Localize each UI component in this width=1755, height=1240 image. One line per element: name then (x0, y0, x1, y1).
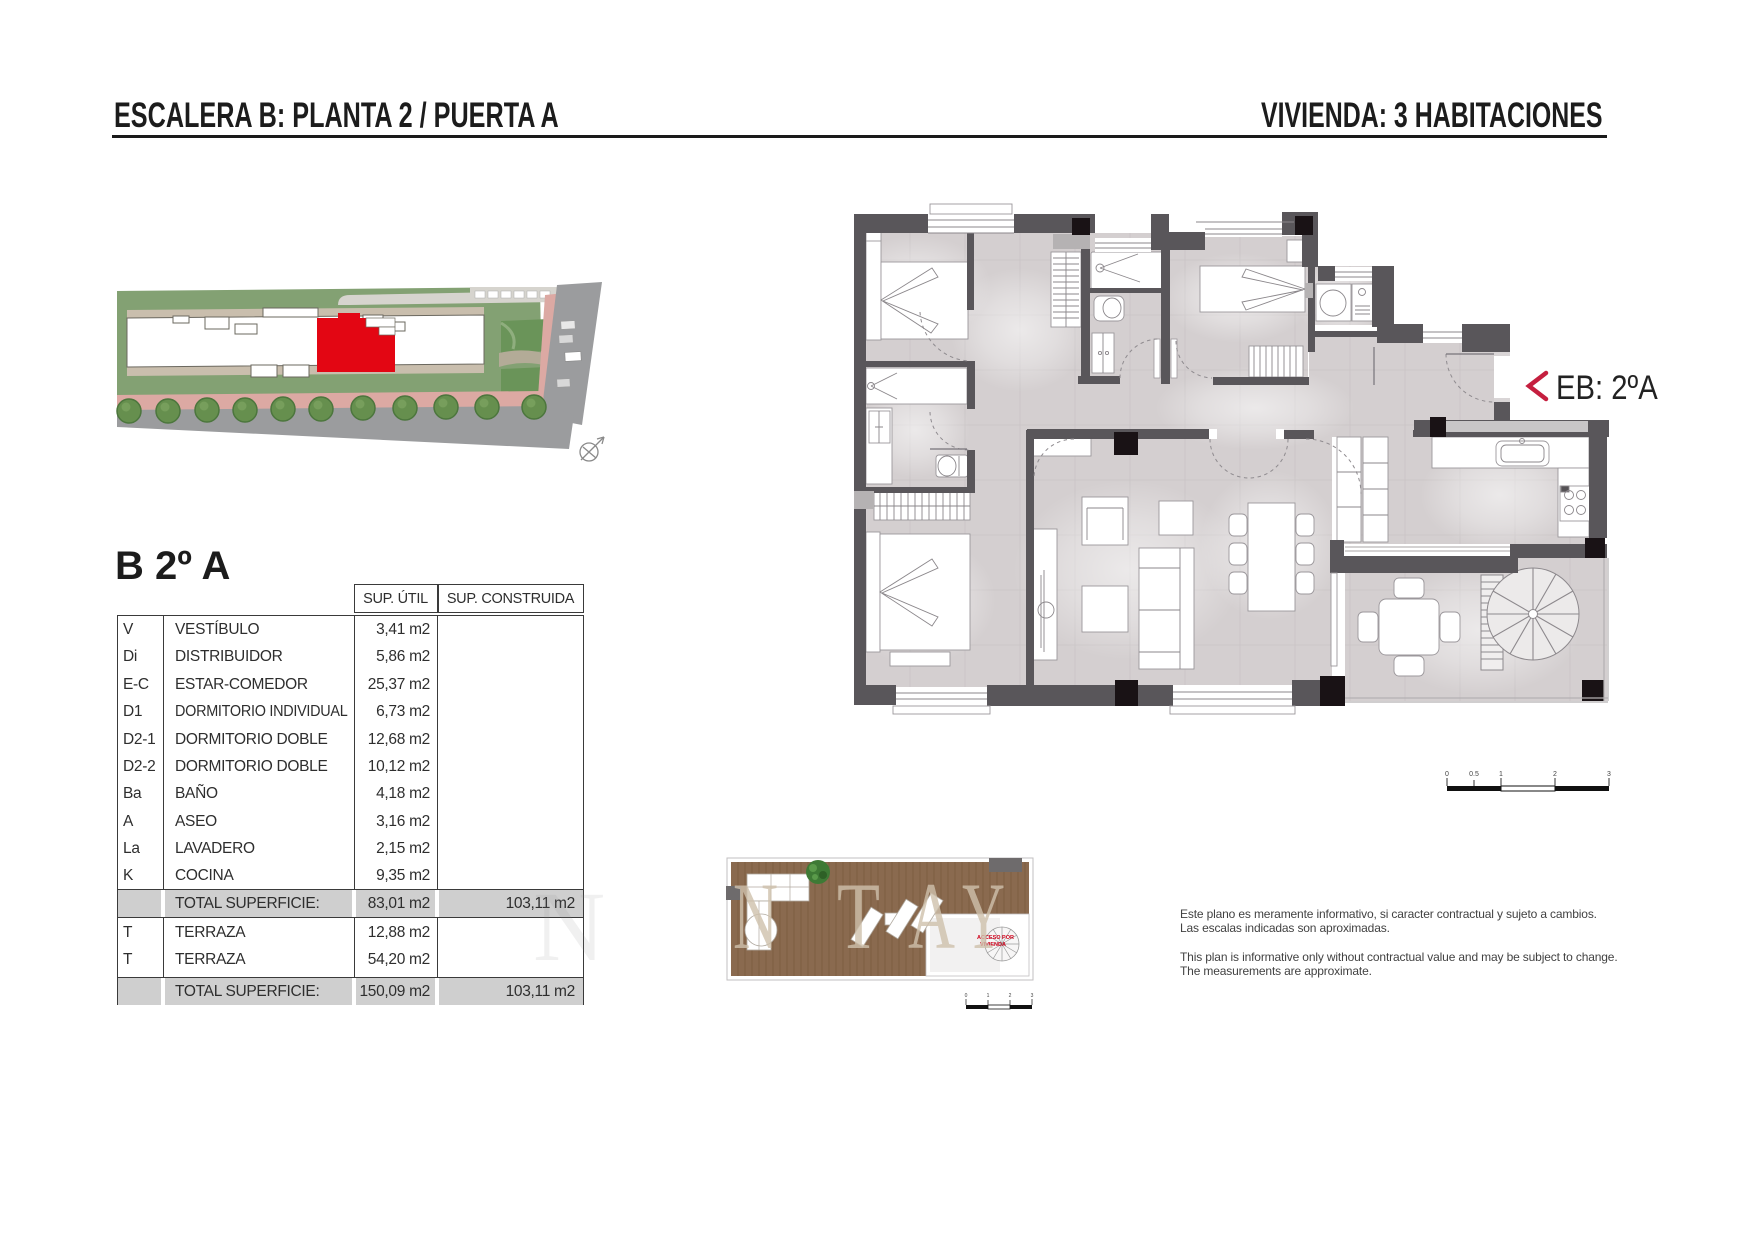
svg-text:0.5: 0.5 (1469, 771, 1479, 778)
svg-text:N: N (533, 871, 605, 982)
svg-text:N: N (733, 863, 778, 969)
svg-text:3: 3 (1607, 771, 1611, 778)
svg-text:2: 2 (1009, 993, 1012, 999)
svg-text:0: 0 (965, 993, 968, 999)
svg-text:1: 1 (987, 993, 990, 999)
svg-text:1: 1 (1499, 771, 1503, 778)
svg-text:Y: Y (962, 863, 1005, 969)
svg-text:T: T (837, 863, 880, 969)
svg-text:2: 2 (1553, 771, 1557, 778)
svg-text:A: A (908, 863, 955, 969)
svg-text:3: 3 (1031, 993, 1034, 999)
svg-text:0: 0 (1445, 771, 1449, 778)
